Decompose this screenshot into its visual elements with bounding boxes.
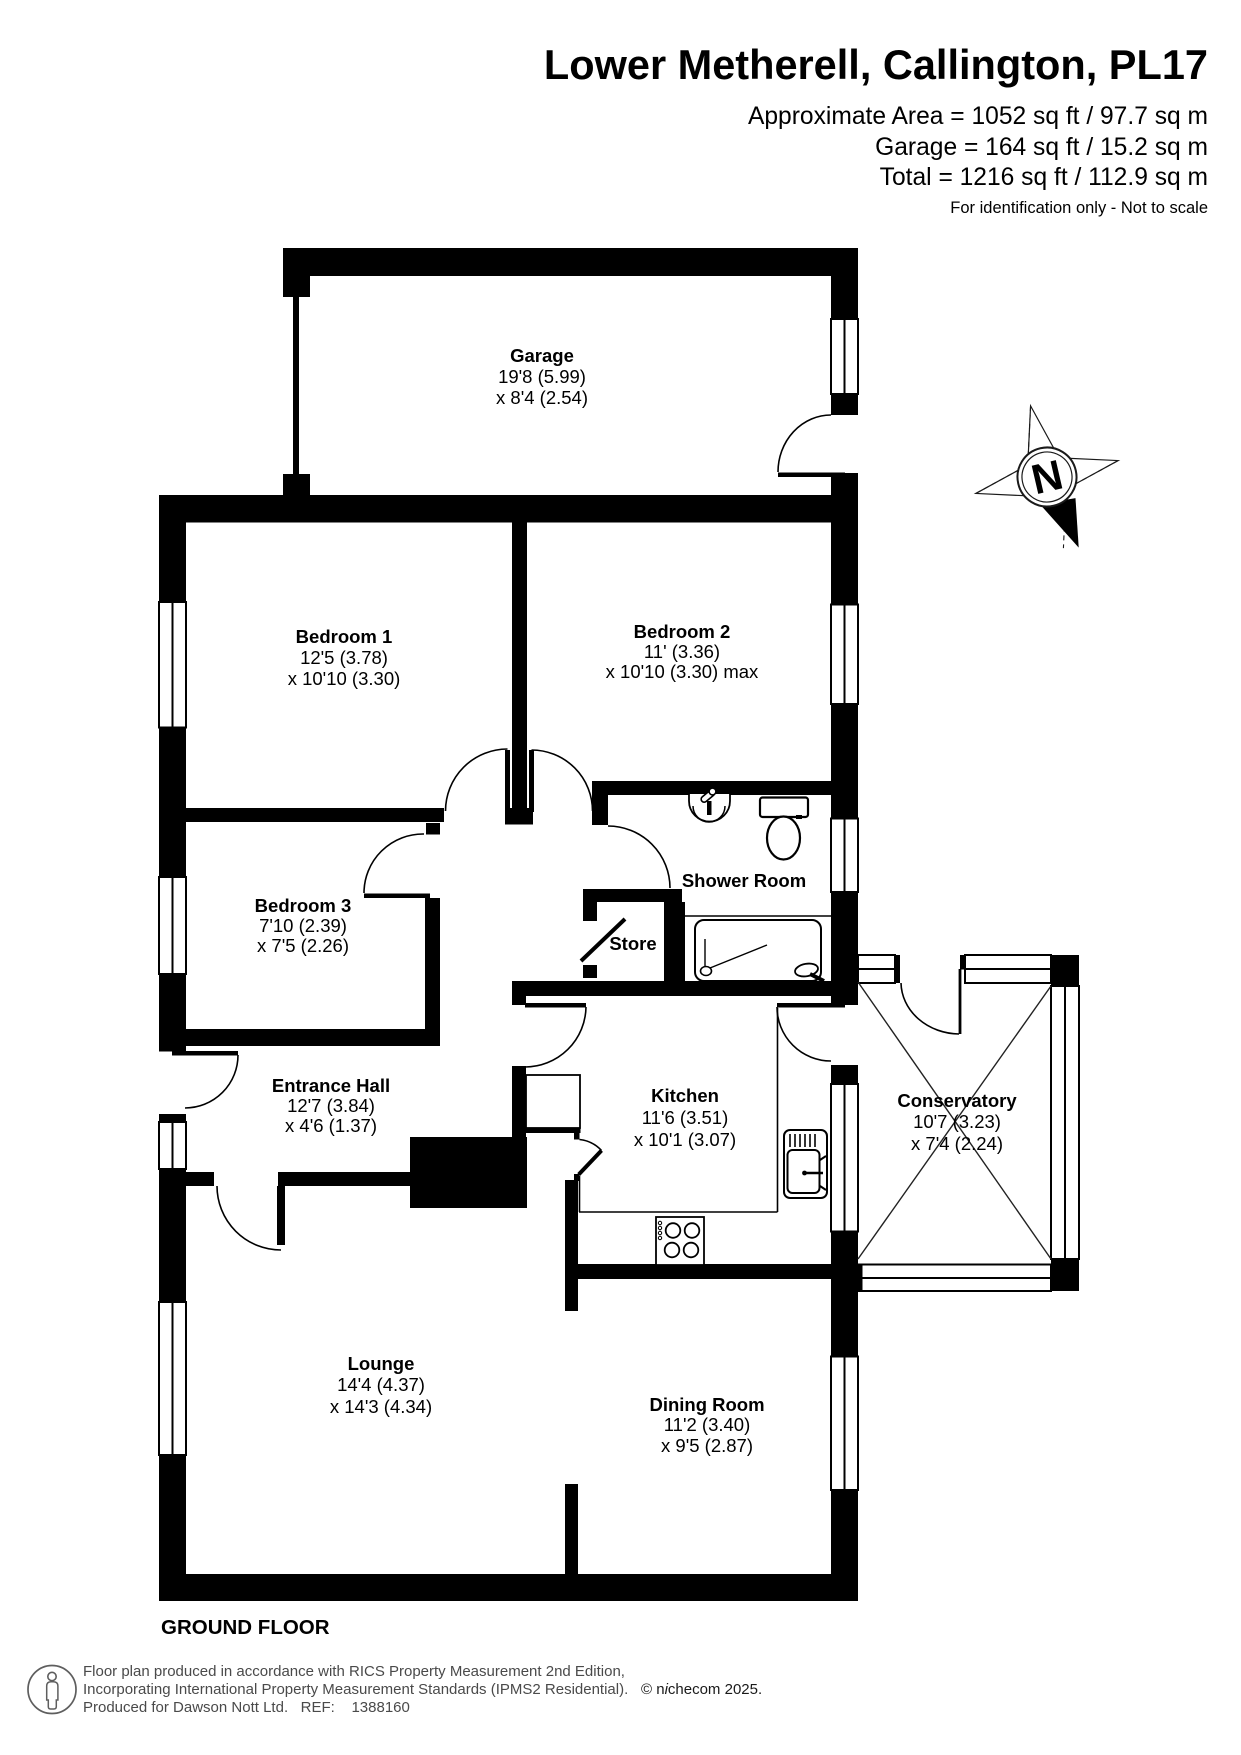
svg-text:Entrance Hall: Entrance Hall (272, 1075, 390, 1096)
svg-text:12'5 (3.78): 12'5 (3.78) (300, 647, 388, 668)
svg-text:x 10'10 (3.30): x 10'10 (3.30) (288, 668, 401, 689)
svg-text:7'10 (2.39): 7'10 (2.39) (259, 915, 347, 936)
svg-text:x 7'4 (2.24): x 7'4 (2.24) (911, 1133, 1003, 1154)
svg-text:Incorporating International Pr: Incorporating International Property Mea… (83, 1681, 628, 1698)
svg-text:x 8'4 (2.54): x 8'4 (2.54) (496, 387, 588, 408)
svg-text:Conservatory: Conservatory (897, 1090, 1017, 1111)
svg-text:Shower Room: Shower Room (682, 870, 806, 891)
svg-text:Kitchen: Kitchen (651, 1085, 719, 1106)
svg-text:x 10'1 (3.07): x 10'1 (3.07) (634, 1129, 736, 1150)
svg-text:x 14'3 (4.34): x 14'3 (4.34) (330, 1396, 432, 1417)
svg-text:Lounge: Lounge (348, 1353, 415, 1374)
svg-text:x 9'5 (2.87): x 9'5 (2.87) (661, 1435, 753, 1456)
svg-text:Dining Room: Dining Room (649, 1394, 764, 1415)
svg-text:Total = 1216 sq ft / 112.9 sq: Total = 1216 sq ft / 112.9 sq m (880, 164, 1208, 191)
svg-text:Garage: Garage (510, 345, 574, 366)
svg-text:GROUND FLOOR: GROUND FLOOR (161, 1616, 330, 1639)
svg-text:x 10'10 (3.30) max: x 10'10 (3.30) max (606, 661, 759, 682)
svg-text:Bedroom 3: Bedroom 3 (255, 895, 352, 916)
svg-text:11' (3.36): 11' (3.36) (644, 641, 720, 662)
svg-text:Produced for Dawson Nott Ltd.: Produced for Dawson Nott Ltd. REF: 13881… (83, 1699, 410, 1716)
svg-text:11'6 (3.51): 11'6 (3.51) (642, 1107, 729, 1128)
svg-text:For identification only - Not: For identification only - Not to scale (950, 199, 1208, 217)
svg-text:x 7'5 (2.26): x 7'5 (2.26) (257, 935, 349, 956)
svg-text:x 4'6 (1.37): x 4'6 (1.37) (285, 1115, 377, 1136)
svg-text:© nichecom 2025.: © nichecom 2025. (641, 1681, 762, 1698)
svg-text:10'7 (3.23): 10'7 (3.23) (913, 1111, 1001, 1132)
svg-text:Lower Metherell, Callington, P: Lower Metherell, Callington, PL17 (544, 41, 1208, 88)
svg-text:19'8 (5.99): 19'8 (5.99) (498, 366, 586, 387)
svg-text:Bedroom 1: Bedroom 1 (296, 626, 393, 647)
svg-text:12'7 (3.84): 12'7 (3.84) (287, 1095, 375, 1116)
svg-text:Bedroom 2: Bedroom 2 (634, 621, 731, 642)
svg-text:11'2 (3.40): 11'2 (3.40) (664, 1414, 751, 1435)
svg-text:Approximate Area = 1052 sq ft: Approximate Area = 1052 sq ft / 97.7 sq … (748, 103, 1208, 130)
svg-text:14'4 (4.37): 14'4 (4.37) (337, 1374, 425, 1395)
svg-text:Floor plan produced in accorda: Floor plan produced in accordance with R… (83, 1663, 625, 1680)
svg-text:Garage = 164 sq ft / 15.2 sq m: Garage = 164 sq ft / 15.2 sq m (875, 134, 1208, 161)
svg-text:Store: Store (609, 933, 656, 954)
